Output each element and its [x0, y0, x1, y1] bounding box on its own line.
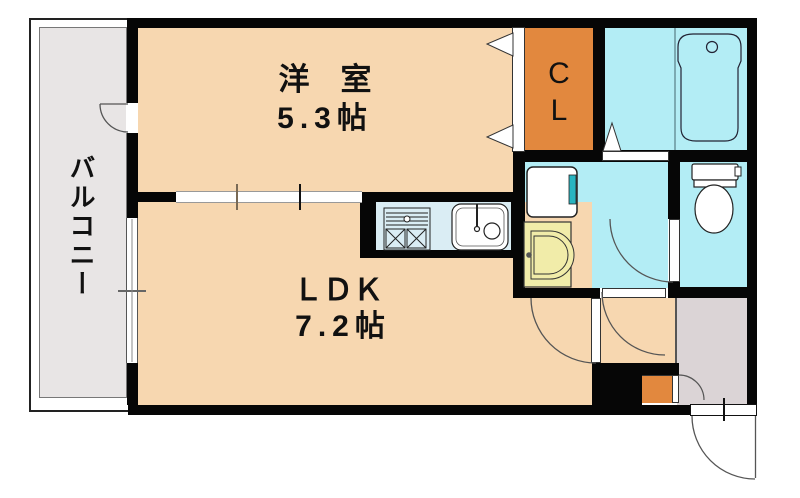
- entrance-door-swing-arc: [692, 416, 756, 479]
- balcony-door-swing-arc: [100, 104, 128, 132]
- washing-machine-icon: [527, 167, 577, 217]
- bathtub-icon: [678, 34, 741, 141]
- toilet-icon: [692, 164, 741, 233]
- shoe-cabinet-door-swing-arc: [679, 375, 704, 400]
- bathroom-door-icon: [603, 123, 621, 151]
- floor-plan: 洋 室 5.3帖 ＬＤＫ 7.2帖 C L バルコニー: [0, 0, 800, 498]
- ldk-label: ＬＤＫ: [150, 275, 526, 307]
- toilet-door-swing-arc: [610, 219, 673, 282]
- washbasin-icon: [524, 222, 574, 287]
- stove-icon: [384, 208, 430, 250]
- washroom-door-swing-arc: [602, 292, 665, 355]
- ldk-door-swing-arc: [531, 298, 596, 363]
- ldk-size: 7.2帖: [155, 311, 531, 343]
- closet-label-l: L: [525, 95, 593, 127]
- closet-label-c: C: [525, 58, 593, 90]
- balcony-label: バルコニー: [58, 134, 94, 319]
- western-room-size: 5.3帖: [137, 103, 513, 135]
- western-room-label: 洋 室: [137, 64, 513, 97]
- sink-icon: [452, 204, 508, 250]
